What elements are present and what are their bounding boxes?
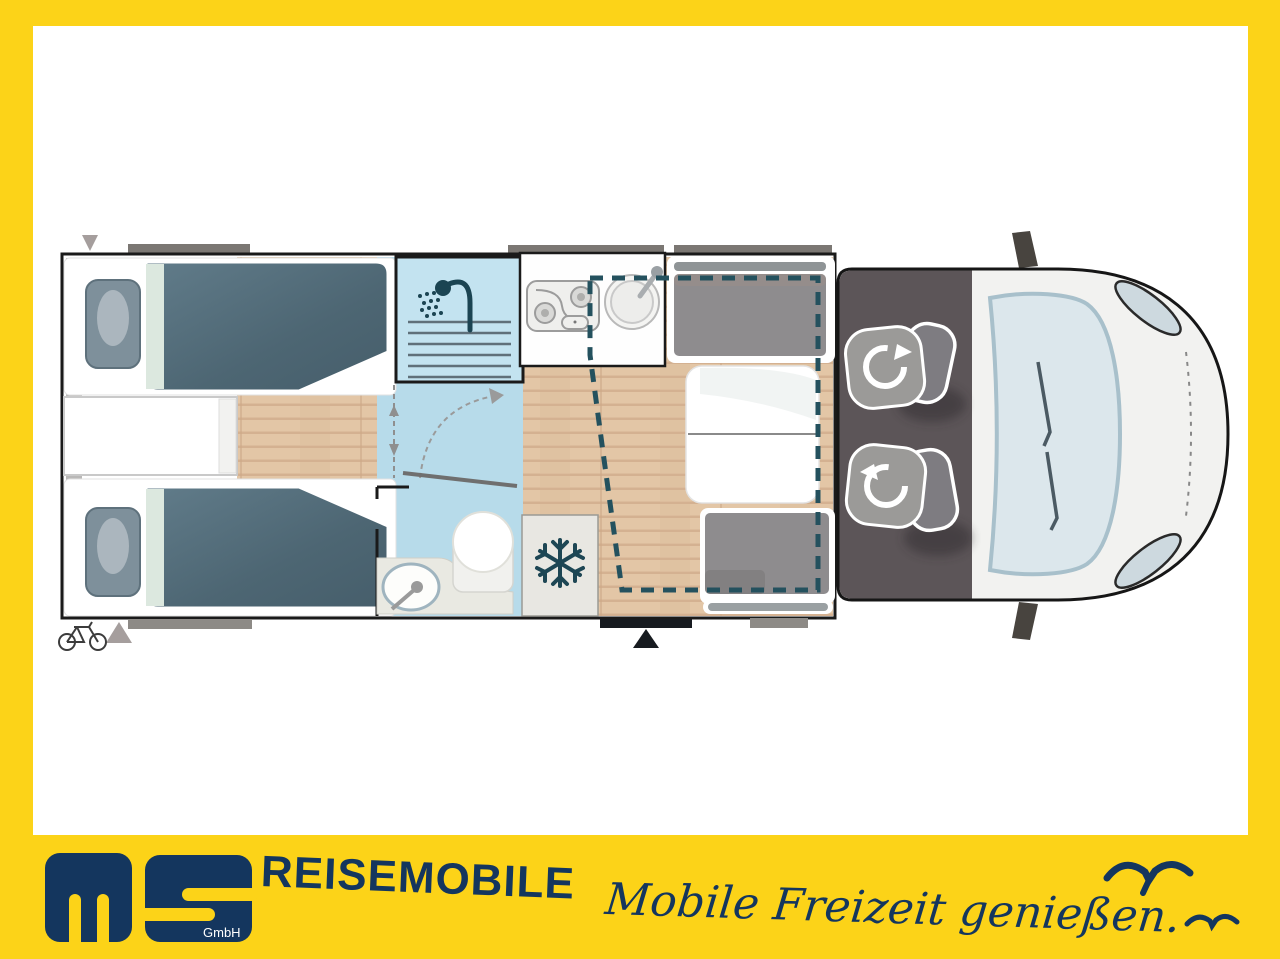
poster-frame: REISEMOBILE Mobile Freizeit genießen. Gm…: [0, 0, 1280, 959]
twin-single-bed-top: [64, 258, 396, 395]
floorplan-drawing: [0, 0, 1280, 959]
dinette-table: [686, 366, 819, 503]
logo-gmbh-label: GmbH: [203, 925, 241, 940]
refrigerator: [522, 515, 598, 616]
side-mirror-top: [1012, 231, 1038, 268]
driver-cab: [838, 231, 1228, 640]
basin-faucet: [411, 581, 423, 593]
windshield: [990, 294, 1120, 575]
shower-cabin: [396, 257, 523, 382]
bottom-markers: [59, 618, 808, 650]
service-hatch-bar: [750, 618, 808, 628]
headboard-strip-top: [146, 264, 164, 389]
cab-swivel-seat-driver: [843, 320, 958, 411]
garage-hatch-bar: [128, 619, 252, 629]
cab-swivel-seat-passenger: [844, 442, 961, 533]
seagull-icon-small: [1187, 916, 1237, 926]
exterior-markers: [82, 235, 832, 254]
headboard-strip-bottom: [146, 489, 164, 606]
rear-marker-triangle-top: [82, 235, 98, 251]
entry-door-bar: [600, 619, 692, 628]
bike-storage-icon: [59, 622, 106, 650]
dinette-seat-rear: [700, 508, 835, 614]
toilet: [453, 512, 513, 592]
entry-door-triangle: [633, 629, 659, 648]
bedside-cabinet: [64, 397, 237, 475]
side-mirror-bottom: [1012, 602, 1038, 640]
dinette-seat-front: [667, 256, 835, 363]
twin-single-bed-bottom: [64, 479, 396, 616]
